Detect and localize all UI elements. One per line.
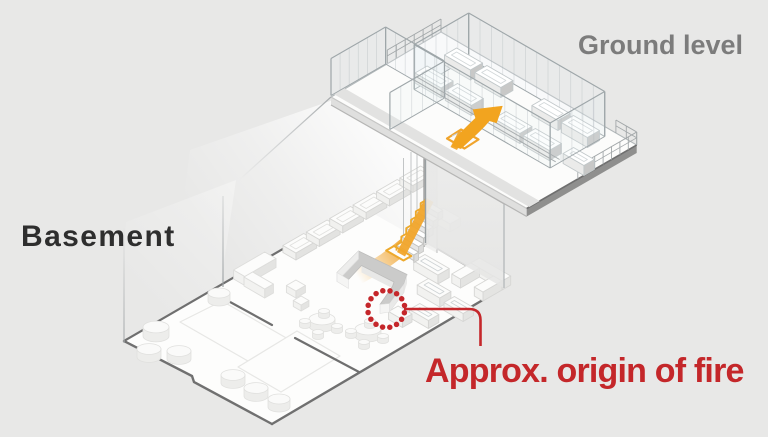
- svg-text:Approx. origin of fire: Approx. origin of fire: [425, 352, 744, 390]
- svg-text:Ground level: Ground level: [578, 30, 743, 60]
- svg-text:Basement: Basement: [21, 220, 176, 253]
